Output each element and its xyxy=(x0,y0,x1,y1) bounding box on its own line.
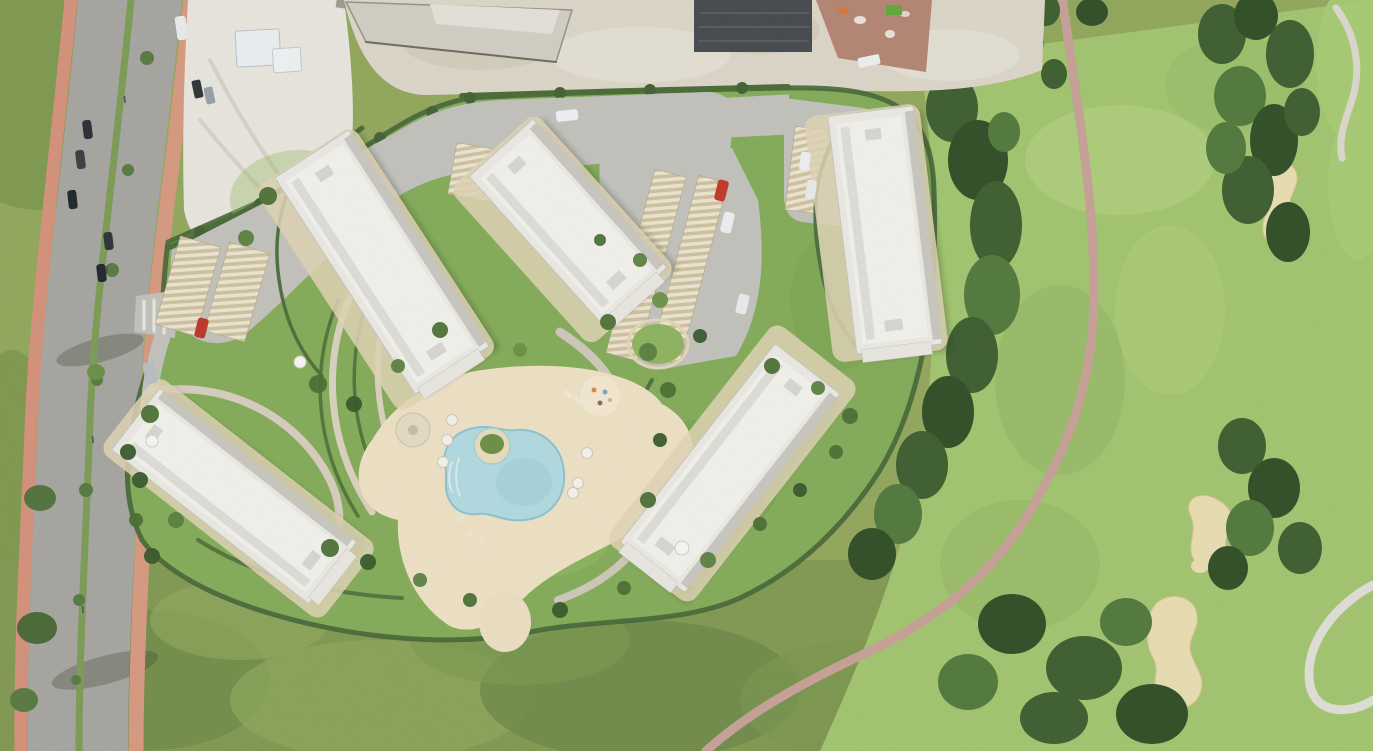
aerial-render-canvas xyxy=(0,0,1373,751)
photo-grain-overlay xyxy=(0,0,1373,751)
aerial-view-stage xyxy=(0,0,1373,751)
